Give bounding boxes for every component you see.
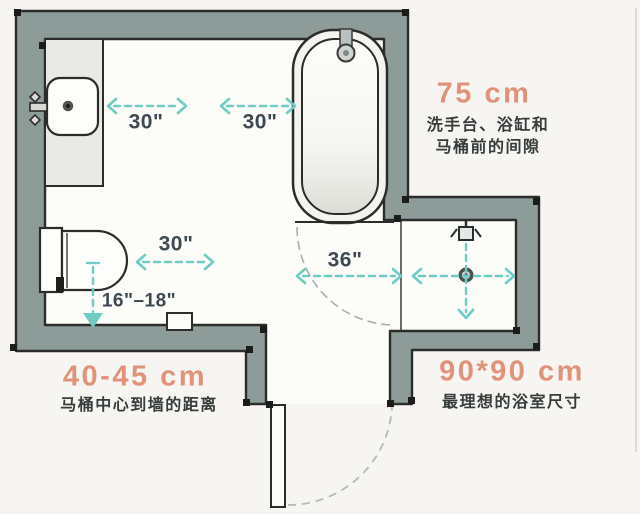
annotation-toilet-center-value: 40-45 cm bbox=[63, 363, 207, 392]
annotation-clearance-text-line1: 洗手台、浴缸和 bbox=[427, 118, 550, 134]
dimension-label-tub-clearance: 30" bbox=[243, 112, 278, 133]
annotation-shower-size-text: 最理想的浴室尺寸 bbox=[442, 395, 582, 411]
dimension-label-door-width: 36" bbox=[328, 250, 363, 271]
bathtub bbox=[293, 29, 387, 223]
door-swing-arc bbox=[288, 407, 392, 505]
annotation-shower-size-value: 90*90 cm bbox=[439, 358, 585, 387]
bathtub-basin bbox=[302, 39, 378, 214]
door-leaf bbox=[271, 405, 285, 507]
annotation-clearance-text-line2: 马桶前的间隙 bbox=[435, 140, 540, 156]
dimension-label-sink-clearance: 30" bbox=[129, 112, 164, 133]
annotation-toilet-center-text: 马桶中心到墙的距离 bbox=[60, 398, 218, 414]
dimension-label-toilet-to-wall: 16"–18" bbox=[102, 292, 176, 311]
annotation-clearance-value: 75 cm bbox=[437, 80, 532, 109]
threshold-block bbox=[167, 313, 192, 330]
dimension-label-toilet-clearance: 30" bbox=[159, 234, 194, 255]
floor-plan-drawing bbox=[0, 0, 640, 514]
toilet-bowl bbox=[62, 231, 127, 290]
toilet bbox=[40, 228, 127, 292]
sink-drain-center bbox=[66, 104, 70, 108]
bathroom-floor-plan: 30" 30" 30" 16"–18" 36" 75 cm 洗手台、浴缸和 马桶… bbox=[0, 0, 640, 514]
toilet-hinge bbox=[56, 277, 64, 292]
bathtub-faucet-center bbox=[343, 50, 349, 56]
